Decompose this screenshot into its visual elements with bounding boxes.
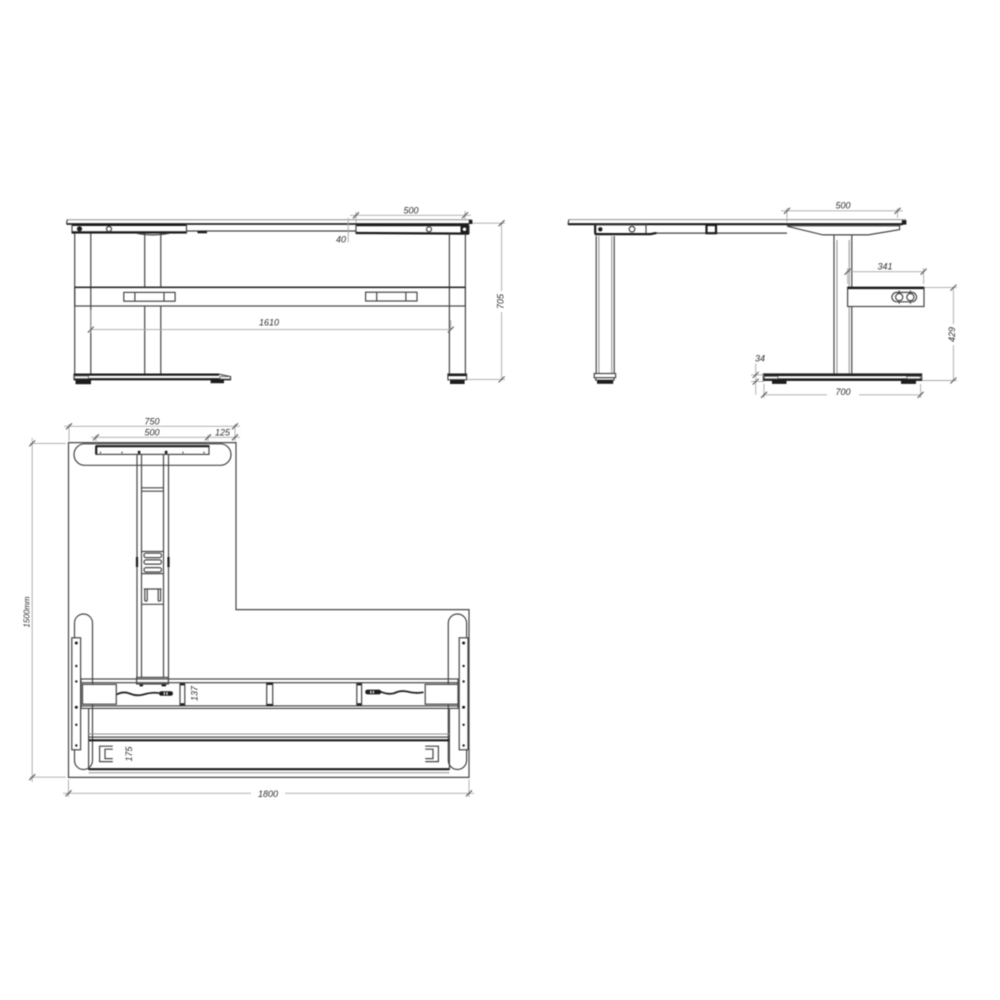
svg-text:125: 125 xyxy=(215,427,231,437)
svg-text:705: 705 xyxy=(495,293,505,309)
svg-text:500: 500 xyxy=(835,201,850,211)
svg-text:750: 750 xyxy=(144,416,159,426)
svg-text:40: 40 xyxy=(336,235,346,245)
svg-text:429: 429 xyxy=(947,327,957,342)
svg-text:500: 500 xyxy=(403,206,418,216)
svg-text:34: 34 xyxy=(755,354,765,364)
svg-text:500: 500 xyxy=(144,427,159,437)
svg-text:700: 700 xyxy=(835,387,850,397)
svg-text:175: 175 xyxy=(124,746,134,762)
svg-text:1610: 1610 xyxy=(259,318,279,328)
svg-text:1500mm: 1500mm xyxy=(22,596,31,627)
svg-text:341: 341 xyxy=(877,262,892,272)
svg-text:137: 137 xyxy=(189,685,199,701)
svg-text:1800: 1800 xyxy=(258,789,278,799)
